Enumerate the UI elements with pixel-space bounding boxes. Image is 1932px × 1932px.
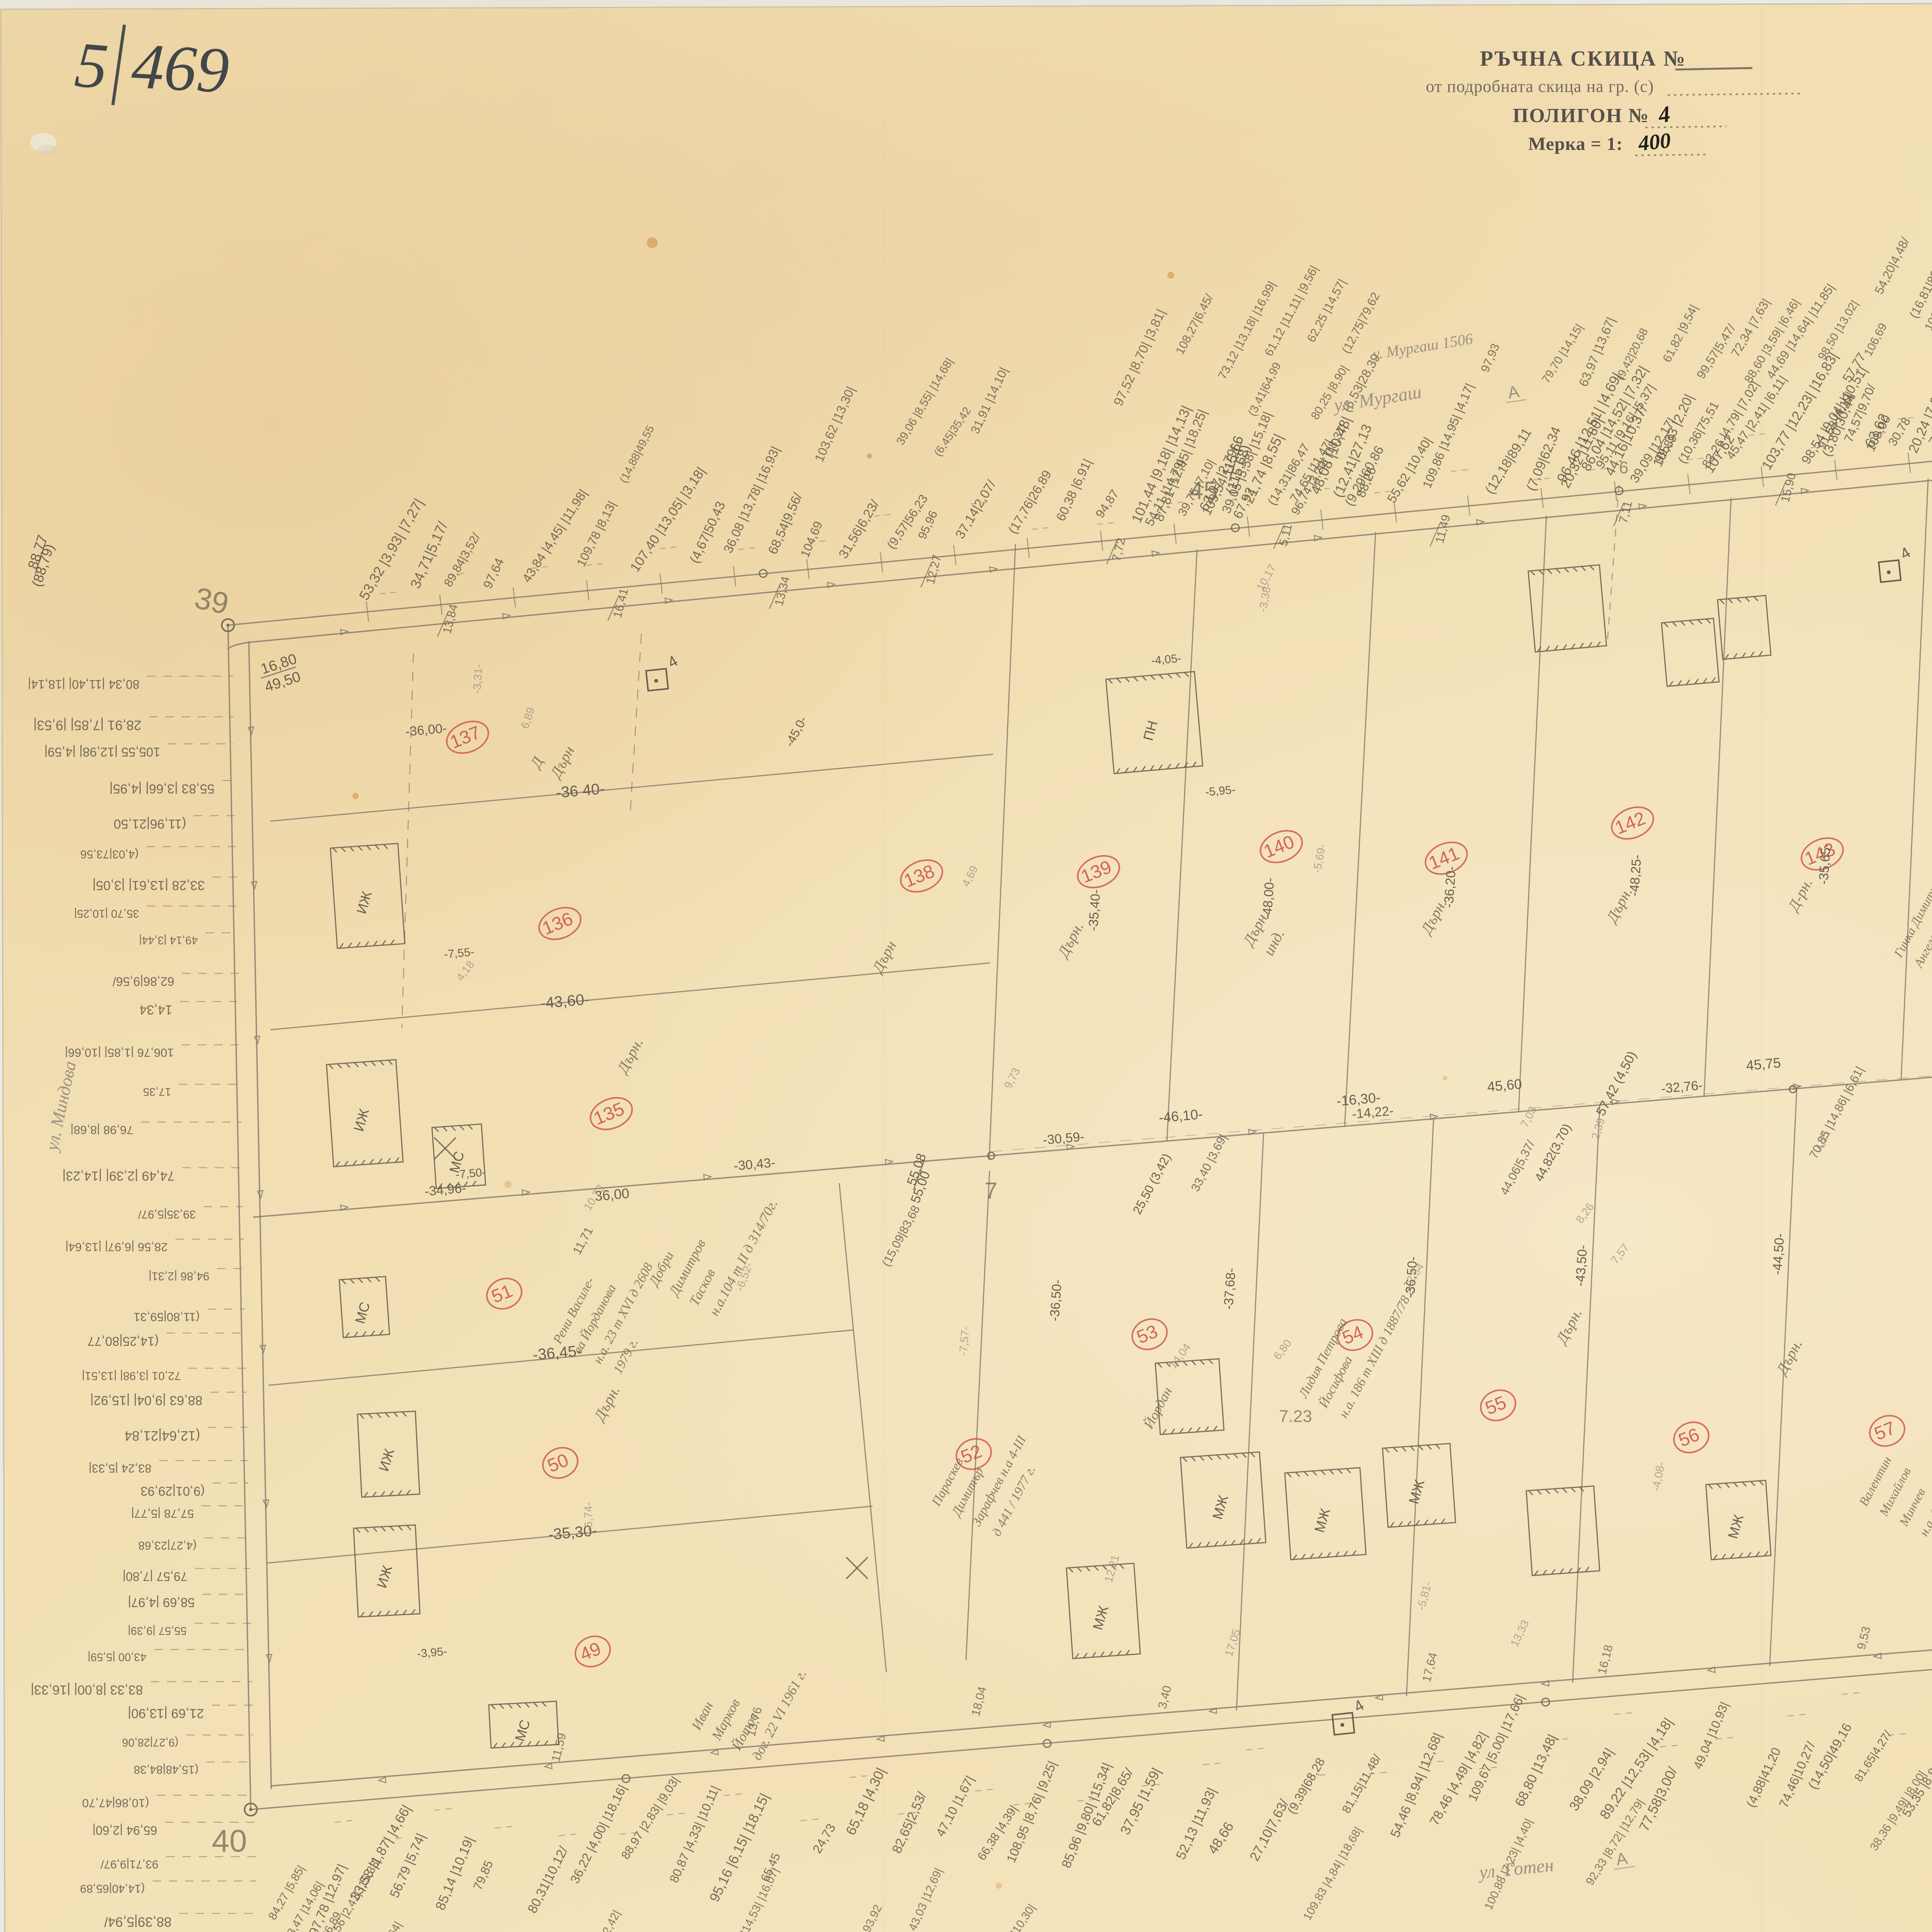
svg-text:от подробната скица на гр. (с): от подробната скица на гр. (с)	[1426, 77, 1654, 96]
svg-text:-43,50-: -43,50-	[1573, 1244, 1590, 1287]
svg-text:-5,95-: -5,95-	[1205, 783, 1236, 799]
svg-text:-7,57-: -7,57-	[957, 1326, 972, 1356]
svg-text:55,57 |9,39|: 55,57 |9,39|	[128, 1624, 187, 1637]
svg-text:76,98 |8,68|: 76,98 |8,68|	[70, 1123, 133, 1137]
svg-text:(4,27|23,68: (4,27|23,68	[138, 1539, 197, 1552]
svg-text:33,28 |13,61| |3,05|: 33,28 |13,61| |3,05|	[92, 878, 205, 893]
svg-text:-4,05-: -4,05-	[1151, 652, 1182, 667]
svg-text:-7,50-: -7,50-	[455, 1166, 486, 1181]
svg-text:28,91 |7,85| |9,53|: 28,91 |7,85| |9,53|	[33, 718, 141, 733]
svg-text:-6,74-: -6,74-	[582, 1502, 595, 1531]
svg-text:(10,86|47,70: (10,86|47,70	[82, 1796, 149, 1810]
svg-text:5: 5	[72, 29, 111, 103]
svg-text:49,14 |3,44|: 49,14 |3,44|	[139, 934, 198, 946]
svg-text:-3,95-: -3,95-	[417, 1645, 448, 1660]
svg-text:105,55 |12,98| |4,59|: 105,55 |12,98| |4,59|	[44, 745, 160, 759]
svg-text:83,24 |5,33|: 83,24 |5,33|	[88, 1462, 151, 1475]
svg-text:14,34: 14,34	[139, 1002, 172, 1017]
svg-text:88,63 |9,04| |15,92|: 88,63 |9,04| |15,92|	[90, 1393, 202, 1408]
svg-text:(14,25|80,77: (14,25|80,77	[87, 1334, 159, 1349]
svg-text:(15,48|84,38: (15,48|84,38	[134, 1763, 199, 1776]
svg-text:39,35|5,97/: 39,35|5,97/	[138, 1208, 196, 1221]
svg-text:39: 39	[192, 581, 231, 621]
svg-text:35,70 |10,25|: 35,70 |10,25|	[74, 907, 139, 920]
svg-text:45,75: 45,75	[1745, 1054, 1781, 1073]
svg-text:57,78 |5,77|: 57,78 |5,77|	[131, 1507, 194, 1520]
svg-text:45: 45	[1189, 476, 1218, 505]
svg-text:40: 40	[212, 1823, 247, 1859]
svg-text:83,33 |8,00| |16,33|: 83,33 |8,00| |16,33|	[31, 1682, 143, 1697]
svg-text:469: 469	[130, 30, 231, 107]
svg-text:72,01 |3,98| |13,51|: 72,01 |3,98| |13,51|	[82, 1369, 181, 1382]
svg-text:21,69 |13,90|: 21,69 |13,90|	[128, 1706, 204, 1721]
svg-text:-44,50-: -44,50-	[1770, 1233, 1787, 1275]
svg-text:6: 6	[1619, 458, 1628, 477]
svg-text:-7,55-: -7,55-	[444, 946, 475, 961]
svg-text:(14,40|65,89: (14,40|65,89	[80, 1882, 145, 1895]
svg-text:58,69 |4,97|: 58,69 |4,97|	[128, 1595, 195, 1610]
svg-text:17,35: 17,35	[143, 1085, 171, 1098]
svg-text:7.23: 7.23	[1279, 1407, 1312, 1426]
svg-text:РЪЧНА СКИЦА №: РЪЧНА СКИЦА №	[1480, 47, 1686, 71]
svg-text:-35,65-: -35,65-	[1816, 842, 1833, 885]
svg-text:(11,80|59,31: (11,80|59,31	[134, 1310, 200, 1324]
svg-text:ПОЛИГОН №: ПОЛИГОН №	[1513, 105, 1649, 127]
svg-text:(11,96|21,50: (11,96|21,50	[114, 816, 186, 831]
svg-text:28,56 |6,97| |13,64|: 28,56 |6,97| |13,64|	[65, 1240, 168, 1254]
svg-text:(12,64|21,84: (12,64|21,84	[124, 1428, 200, 1443]
svg-text:74,49 |2,39| |14,23|: 74,49 |2,39| |14,23|	[62, 1168, 175, 1183]
svg-text:88,39|5,94/: 88,39|5,94/	[104, 1914, 172, 1929]
svg-text:55,83 |3,66| |4,95|: 55,83 |3,66| |4,95|	[109, 781, 214, 796]
svg-text:65,94 |2,60|: 65,94 |2,60|	[92, 1823, 157, 1837]
svg-text:45,60: 45,60	[1486, 1076, 1522, 1095]
svg-text:-36,50-: -36,50-	[1047, 1279, 1065, 1321]
svg-text:-37,68-: -37,68-	[1221, 1267, 1238, 1310]
svg-text:(9,01|29,93: (9,01|29,93	[141, 1484, 205, 1498]
svg-text:93,71|9,97/: 93,71|9,97/	[100, 1858, 158, 1871]
svg-text:7: 7	[985, 1178, 997, 1204]
svg-text:-3,31-: -3,31-	[471, 664, 485, 694]
svg-text:400: 400	[1637, 128, 1672, 156]
svg-text:(9,27|28,06: (9,27|28,06	[122, 1736, 179, 1748]
svg-text:(4,03|73,56: (4,03|73,56	[80, 848, 139, 861]
svg-text:80,34 |11,40| |18,14|: 80,34 |11,40| |18,14|	[28, 677, 139, 691]
svg-text:62,86|9,56/: 62,86|9,56/	[112, 975, 174, 988]
svg-text:94,86 |2,31|: 94,86 |2,31|	[149, 1270, 209, 1282]
svg-text:-35,40-: -35,40-	[1086, 889, 1103, 931]
svg-text:79,57 |7,80|: 79,57 |7,80|	[122, 1570, 187, 1583]
svg-text:106,76 |1,85| |10,66|: 106,76 |1,85| |10,66|	[65, 1046, 174, 1060]
svg-text:43,00 |5,59|: 43,00 |5,59|	[88, 1651, 146, 1663]
svg-text:Мерка = 1:: Мерка = 1:	[1528, 134, 1623, 154]
